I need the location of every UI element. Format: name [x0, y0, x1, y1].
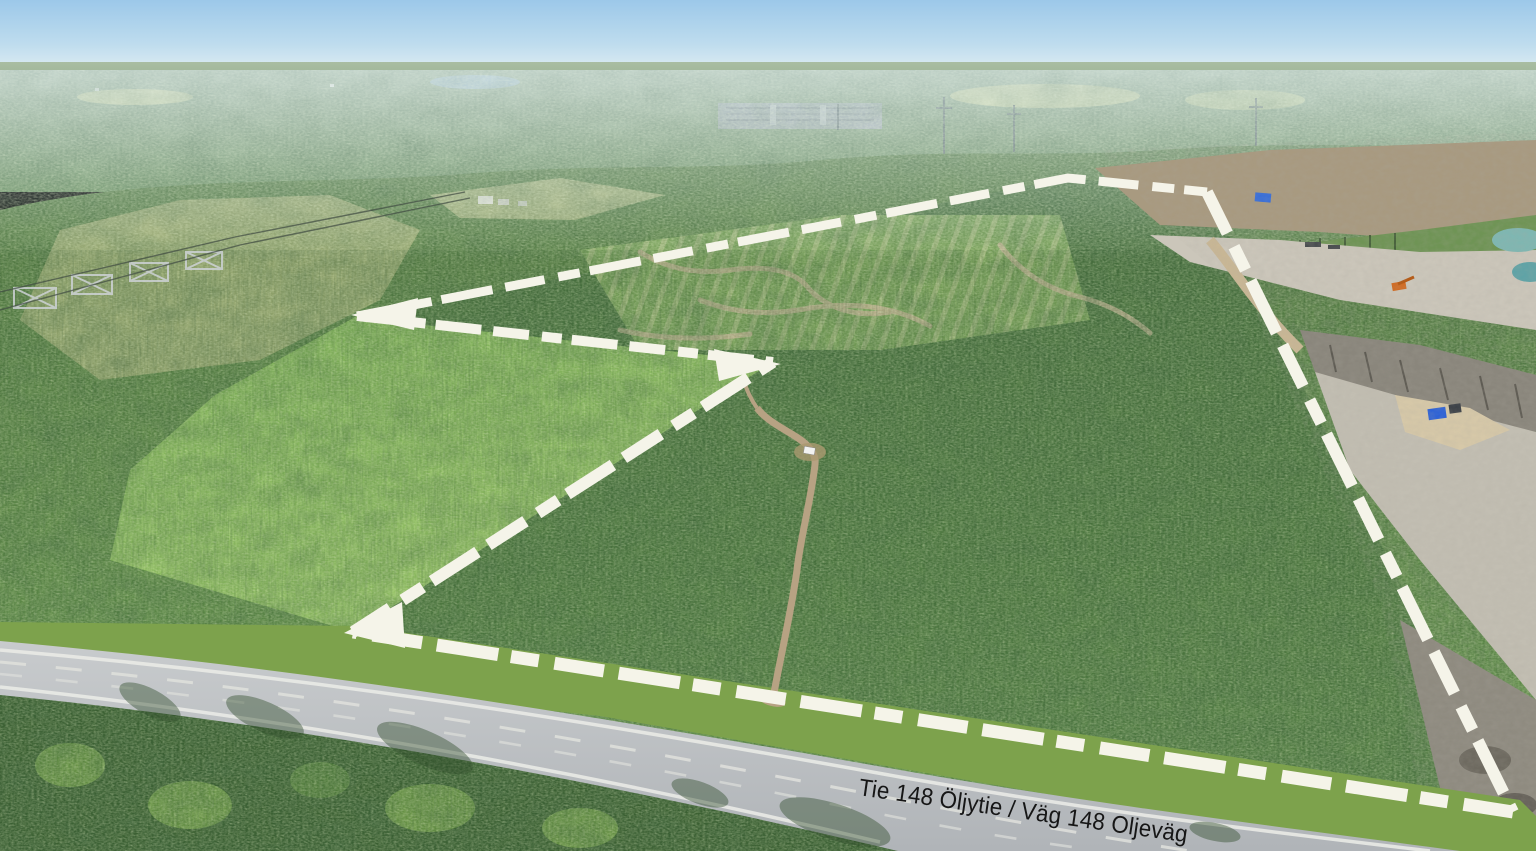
aerial-photo-canvas: Tie 148 Öljytie / Väg 148 Oljeväg [0, 0, 1536, 851]
aerial-photo: Tie 148 Öljytie / Väg 148 Oljeväg [0, 0, 1536, 851]
